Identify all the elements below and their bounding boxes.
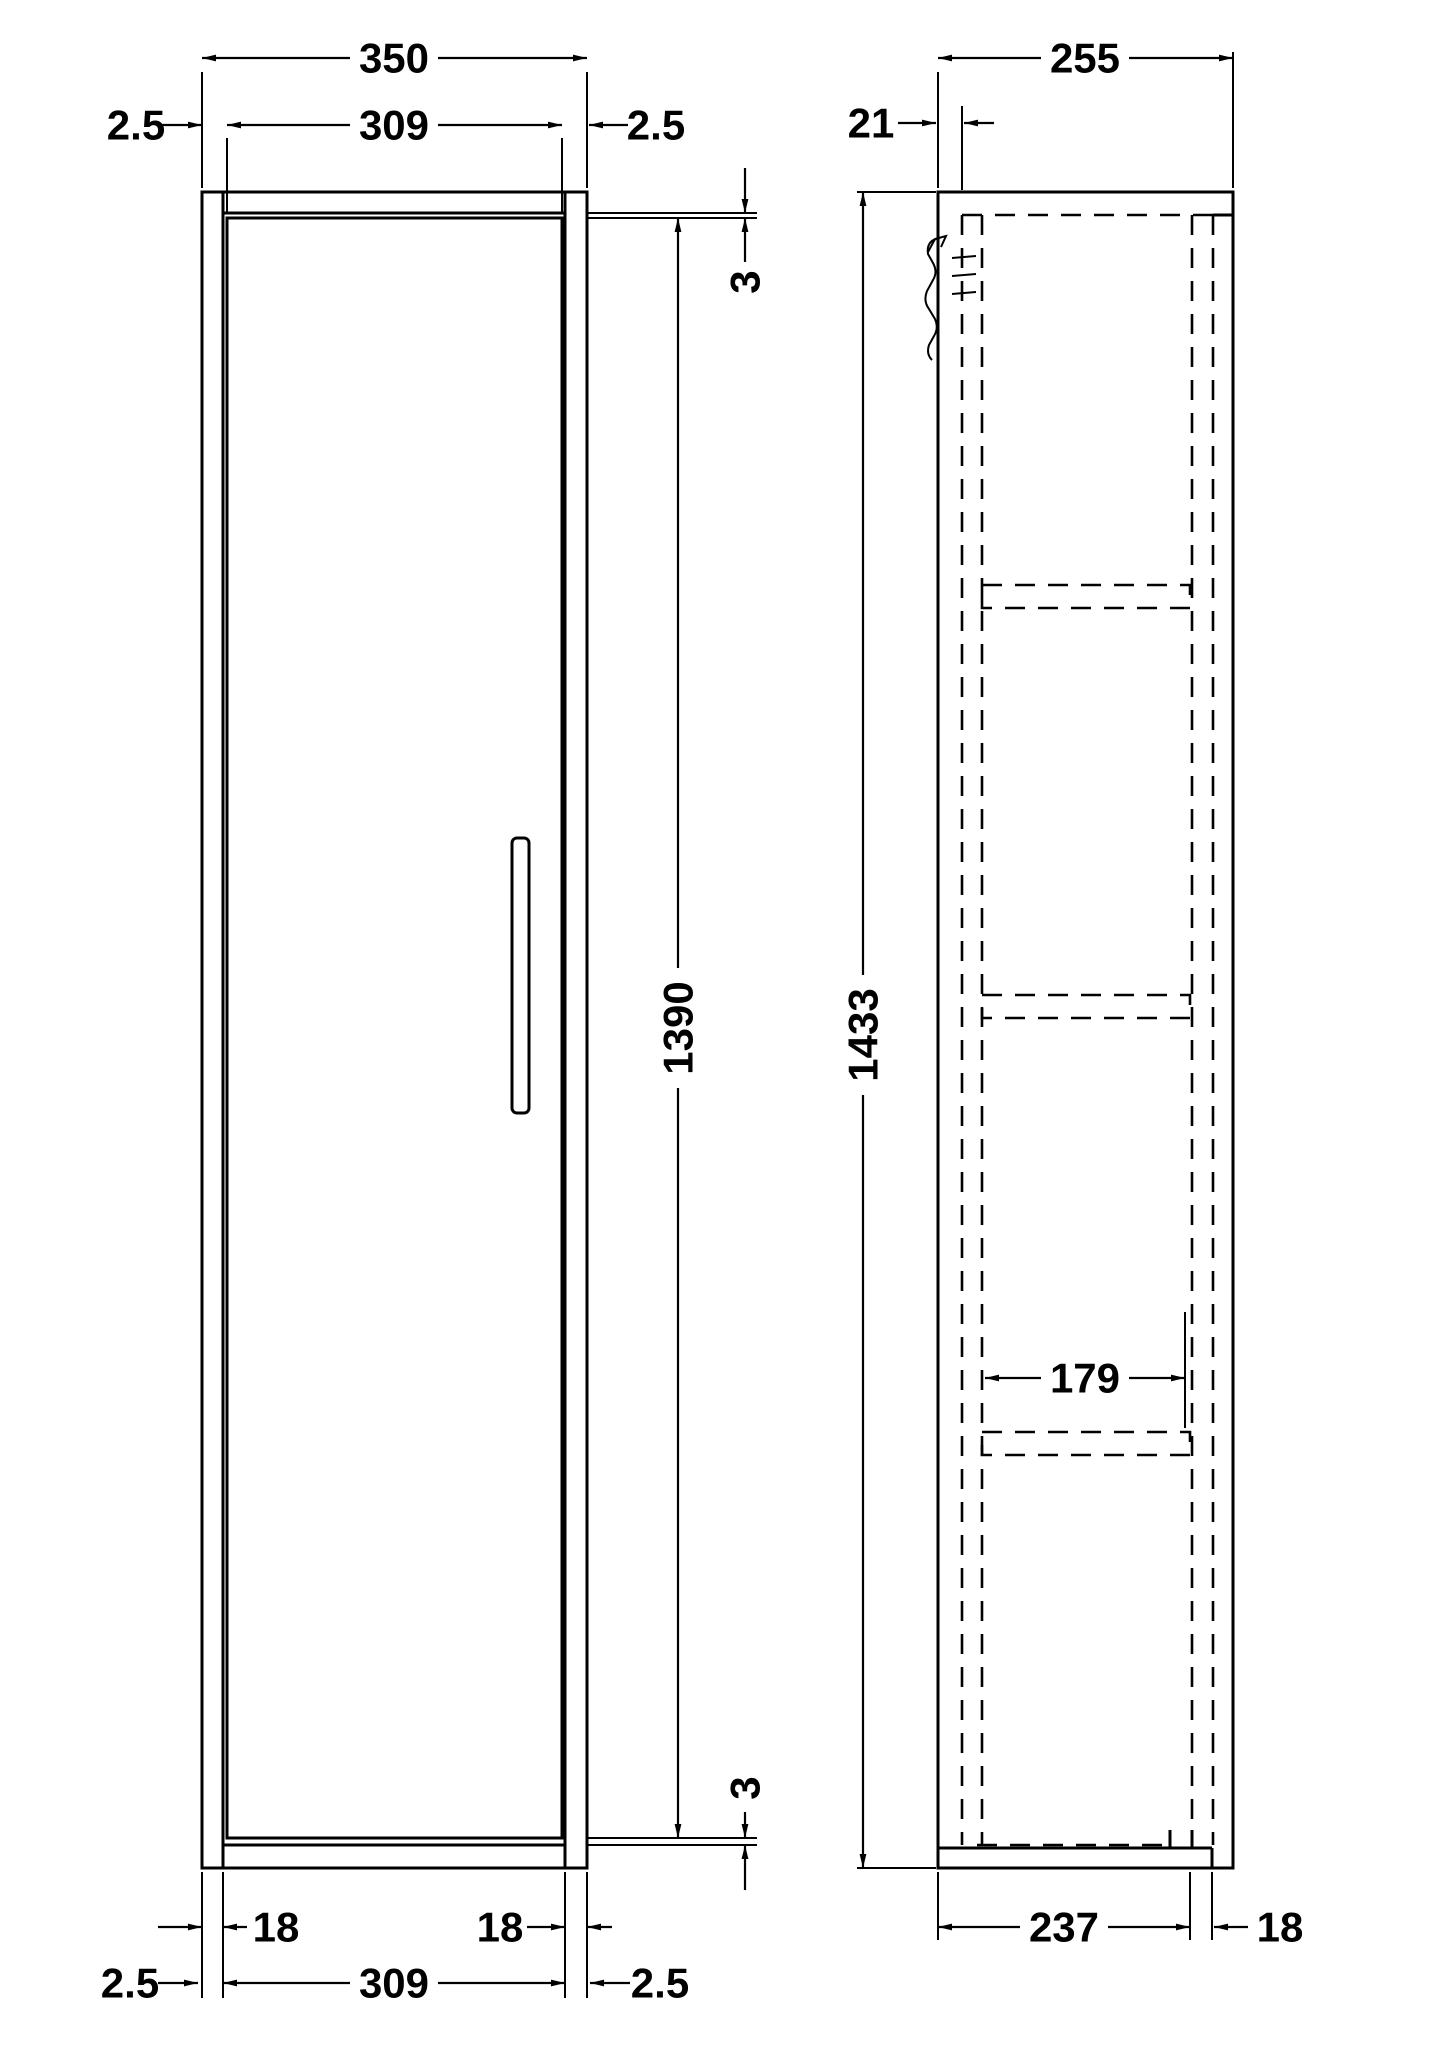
front-view bbox=[202, 192, 587, 1868]
cabinet-dimension-drawing: 350 309 2.5 2.5 3 1390 3 bbox=[0, 0, 1445, 2045]
dim-label-309-bottom: 309 bbox=[359, 1960, 429, 2007]
door-handle bbox=[512, 838, 529, 1113]
dim-label-3-bottom: 3 bbox=[722, 1776, 769, 1799]
dim-label-3-top: 3 bbox=[722, 270, 769, 293]
dim-side-overall-height: 1433 bbox=[840, 192, 937, 1868]
dim-label-1433: 1433 bbox=[840, 988, 887, 1081]
dim-side-overall-depth: 255 bbox=[938, 35, 1233, 189]
dim-label-350: 350 bbox=[359, 35, 429, 82]
dim-label-18-left: 18 bbox=[253, 1904, 300, 1951]
dim-front-door-width-bottom: 309 bbox=[223, 1960, 565, 2007]
hinge-icon bbox=[925, 236, 976, 360]
shelf-middle-hidden bbox=[982, 995, 1190, 1018]
technical-drawing-canvas: 350 309 2.5 2.5 3 1390 3 bbox=[0, 0, 1445, 2045]
dim-label-18-side: 18 bbox=[1257, 1904, 1304, 1951]
dim-label-237: 237 bbox=[1029, 1904, 1099, 1951]
dim-label-18-right: 18 bbox=[477, 1904, 524, 1951]
dim-front-gap-top-right: 2.5 bbox=[589, 102, 685, 149]
dim-label-309-top: 309 bbox=[359, 102, 429, 149]
dim-label-255: 255 bbox=[1050, 35, 1120, 82]
dim-front-panel-right: 18 bbox=[477, 1904, 612, 1951]
dim-side-carcass-depth: 237 bbox=[938, 1872, 1212, 1951]
dim-label-1390: 1390 bbox=[655, 981, 702, 1074]
shelf-lower-hidden bbox=[982, 1432, 1190, 1455]
dim-label-179: 179 bbox=[1050, 1355, 1120, 1402]
dim-front-gap-bottom-left: 2.5 bbox=[101, 1960, 198, 2007]
dim-label-2.5-bottom-right: 2.5 bbox=[631, 1960, 689, 2007]
side-view bbox=[925, 192, 1233, 1868]
shelf-top-hidden bbox=[982, 585, 1190, 608]
dim-label-2.5-bottom-left: 2.5 bbox=[101, 1960, 159, 2007]
dim-front-gap-bottom-right: 2.5 bbox=[590, 1960, 689, 2007]
dim-front-door-height: 1390 bbox=[655, 218, 702, 1838]
dim-label-2.5-top-left: 2.5 bbox=[107, 102, 165, 149]
dim-front-gap-top-left: 2.5 bbox=[107, 102, 202, 149]
dim-front-door-width-top: 309 bbox=[227, 102, 562, 215]
dim-side-door-projection: 21 bbox=[848, 100, 994, 191]
dim-label-21: 21 bbox=[848, 100, 895, 147]
dim-label-2.5-top-right: 2.5 bbox=[627, 102, 685, 149]
dim-side-shelf-depth: 179 bbox=[985, 1312, 1185, 1428]
dim-side-back-inset: 18 bbox=[1214, 1904, 1303, 1951]
dim-front-panel-left: 18 bbox=[158, 1904, 299, 1951]
